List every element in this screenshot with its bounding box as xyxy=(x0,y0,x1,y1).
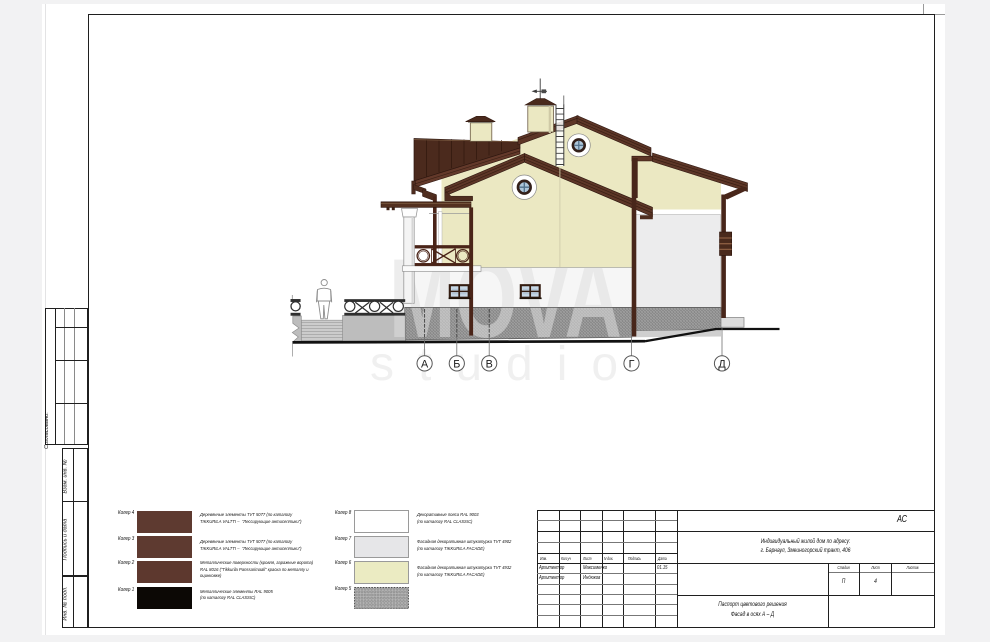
svg-text:В: В xyxy=(486,358,493,370)
svg-text:А: А xyxy=(421,358,429,370)
svg-text:Б: Б xyxy=(453,358,460,370)
svg-text:Д: Д xyxy=(718,358,726,370)
svg-text:studio: studio xyxy=(370,338,642,390)
svg-text:Г: Г xyxy=(629,358,635,370)
